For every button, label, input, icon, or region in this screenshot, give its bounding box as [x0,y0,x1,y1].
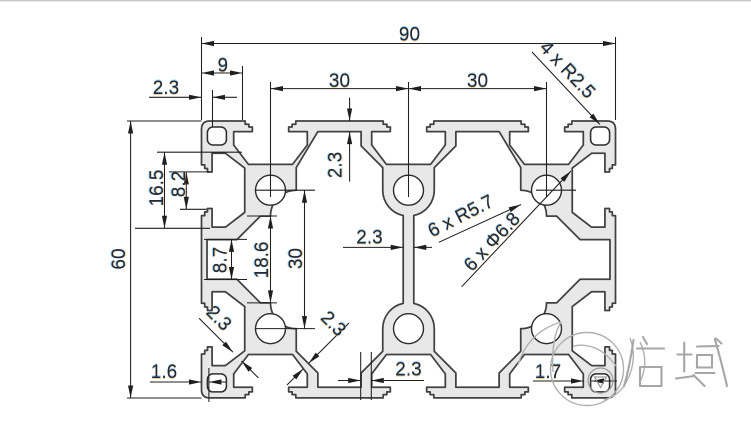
svg-text:2.3: 2.3 [356,228,382,249]
svg-text:18.6: 18.6 [252,242,273,279]
svg-text:8.2: 8.2 [169,171,190,197]
svg-text:30: 30 [286,248,307,269]
svg-text:1.7: 1.7 [535,362,561,383]
svg-text:2.3: 2.3 [153,78,179,99]
svg-text:30: 30 [329,71,350,92]
svg-text:16.5: 16.5 [147,170,168,207]
svg-text:1.6: 1.6 [151,362,177,383]
svg-text:8.7: 8.7 [211,247,232,273]
svg-text:90: 90 [399,25,420,46]
svg-text:60: 60 [109,248,130,269]
svg-text:2.3: 2.3 [395,360,421,381]
svg-text:30: 30 [467,71,488,92]
svg-text:9: 9 [218,56,229,77]
svg-text:2.3: 2.3 [326,152,347,178]
